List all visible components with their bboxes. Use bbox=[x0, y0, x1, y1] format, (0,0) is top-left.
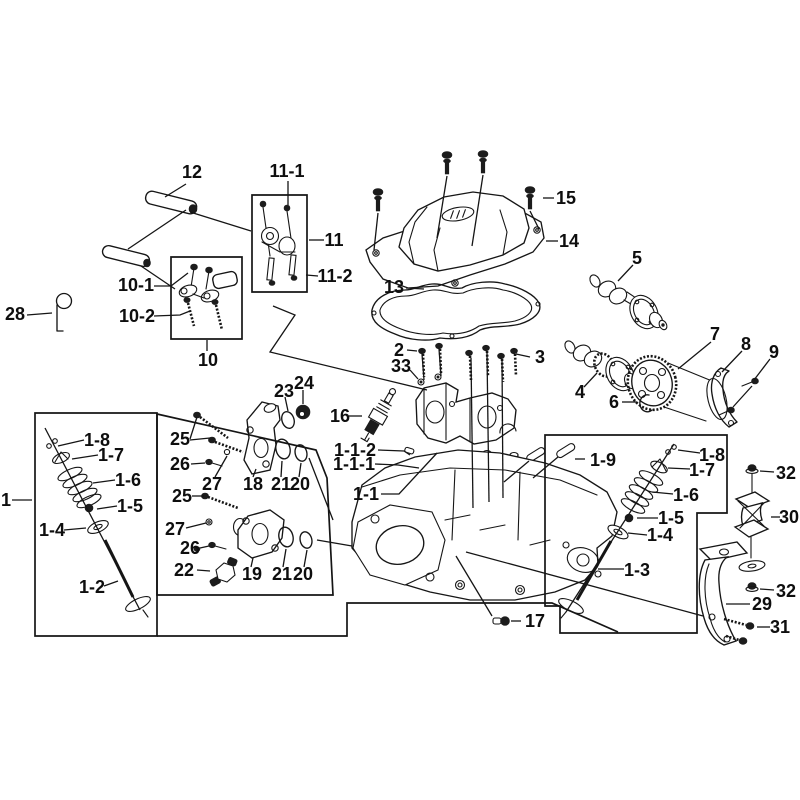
label-1-9: 1-9 bbox=[590, 450, 616, 470]
ld-4 bbox=[584, 373, 597, 387]
part-cam-sprocket-7 bbox=[622, 351, 731, 422]
diagram-canvas: 1211-11111-210-110-210281514135789462333… bbox=[0, 0, 800, 800]
label-5: 5 bbox=[632, 248, 642, 268]
label-33: 33 bbox=[391, 356, 411, 376]
label-1-6-left: 1-6 bbox=[115, 470, 141, 490]
label-1: 1 bbox=[1, 490, 11, 510]
label-16: 16 bbox=[330, 406, 350, 426]
exploded-parts-diagram: 1211-11111-210-110-210281514135789462333… bbox=[0, 0, 800, 800]
part-cylinder-head bbox=[352, 450, 617, 600]
label-14: 14 bbox=[559, 231, 579, 251]
label-26-bottom: 26 bbox=[180, 538, 200, 558]
part-head-bolts-3 bbox=[466, 345, 518, 382]
label-4: 4 bbox=[575, 382, 585, 402]
group-outline-head-band bbox=[157, 603, 618, 636]
label-21-top: 21 bbox=[271, 474, 291, 494]
label-18: 18 bbox=[243, 474, 263, 494]
label-11-1: 11-1 bbox=[269, 161, 304, 181]
ld-1-7L bbox=[72, 455, 98, 459]
label-1-4-right: 1-4 bbox=[647, 525, 673, 545]
label-8: 8 bbox=[741, 334, 751, 354]
ld-1-8R bbox=[678, 450, 700, 453]
part-spark-plug-16 bbox=[358, 385, 401, 444]
ld-26a bbox=[191, 463, 205, 464]
ld-3 bbox=[516, 354, 530, 357]
part-illustrations bbox=[47, 151, 769, 646]
label-11-2: 11-2 bbox=[317, 266, 352, 286]
label-21-bottom: 21 bbox=[272, 564, 292, 584]
label-25-bottom: 25 bbox=[172, 486, 192, 506]
label-19: 19 bbox=[242, 564, 262, 584]
label-27-bottom: 27 bbox=[165, 519, 185, 539]
part-cap-24 bbox=[296, 405, 310, 419]
ld-28 bbox=[27, 313, 52, 315]
label-20-bottom: 20 bbox=[293, 564, 313, 584]
label-12: 12 bbox=[182, 162, 202, 182]
part-cam-carrier-1-1 bbox=[416, 383, 516, 444]
part-washers-33 bbox=[418, 374, 441, 385]
label-10-1: 10-1 bbox=[118, 275, 154, 295]
ld-1-4L bbox=[64, 528, 86, 530]
label-29: 29 bbox=[752, 594, 772, 614]
part-nut-32-bottom bbox=[746, 583, 758, 592]
ld-25a bbox=[190, 417, 197, 439]
ld-22 bbox=[197, 570, 210, 571]
part-valve-cover-14 bbox=[366, 192, 544, 288]
part-bracket-29 bbox=[699, 542, 747, 645]
ld-32b bbox=[760, 589, 774, 590]
part-camshaft-5 bbox=[588, 273, 669, 333]
label-15: 15 bbox=[556, 188, 576, 208]
label-23: 23 bbox=[274, 381, 294, 401]
label-1-7-left: 1-7 bbox=[98, 445, 124, 465]
ld-7 bbox=[678, 342, 711, 369]
label-1-6-right: 1-6 bbox=[673, 485, 699, 505]
part-sensor-22 bbox=[209, 557, 238, 587]
ld-1-5L bbox=[97, 506, 117, 509]
label-1-7-right: 1-7 bbox=[689, 460, 715, 480]
ld-9b bbox=[733, 386, 752, 407]
label-20-top: 20 bbox=[290, 474, 310, 494]
ld-1-7R bbox=[668, 468, 690, 469]
ld-5 bbox=[618, 265, 633, 281]
ld-13 bbox=[406, 288, 424, 289]
ld-9 bbox=[754, 359, 770, 380]
label-7: 7 bbox=[710, 324, 720, 344]
label-28: 28 bbox=[5, 304, 25, 324]
ld-1-4R bbox=[628, 533, 647, 535]
ld-25a2 bbox=[190, 438, 210, 440]
label-32-bottom: 32 bbox=[776, 581, 796, 601]
ld-27b bbox=[186, 523, 206, 528]
label-11: 11 bbox=[324, 230, 343, 250]
label-6: 6 bbox=[609, 392, 619, 412]
ld-1-2 bbox=[104, 581, 118, 586]
label-3: 3 bbox=[535, 347, 545, 367]
label-1-1: 1-1 bbox=[353, 484, 379, 504]
ld-32a bbox=[760, 471, 774, 472]
label-26-top: 26 bbox=[170, 454, 190, 474]
part-manifold-18 bbox=[193, 402, 310, 474]
part-dowel-1-1-2 bbox=[404, 447, 414, 455]
label-9: 9 bbox=[769, 342, 779, 362]
ld-oring-head-1 bbox=[309, 458, 333, 520]
label-1-4-left: 1-4 bbox=[39, 520, 65, 540]
part-hook-28 bbox=[57, 294, 72, 332]
label-25-top: 25 bbox=[170, 429, 190, 449]
ld-8 bbox=[722, 351, 742, 372]
ld-1-8L bbox=[58, 440, 84, 446]
label-1-3: 1-3 bbox=[624, 560, 650, 580]
label-22: 22 bbox=[174, 560, 194, 580]
ld-26b bbox=[200, 546, 209, 548]
ld-1-6L bbox=[93, 480, 115, 483]
ld-pin-box11 bbox=[190, 212, 251, 231]
ld-12 bbox=[165, 184, 186, 197]
ld-12-axis bbox=[128, 210, 186, 249]
ld-10-2 bbox=[154, 311, 190, 316]
label-30: 30 bbox=[779, 507, 799, 527]
label-1-1-1: 1-1-1 bbox=[333, 454, 375, 474]
part-mount-30 bbox=[735, 465, 769, 592]
label-17: 17 bbox=[525, 611, 545, 631]
part-rocker-shafts-12 bbox=[101, 190, 198, 268]
label-1-2: 1-2 bbox=[79, 577, 105, 597]
label-32-top: 32 bbox=[776, 463, 796, 483]
label-13: 13 bbox=[384, 277, 404, 297]
part-nut-32-top bbox=[746, 465, 758, 474]
ld-33 bbox=[410, 370, 418, 379]
label-10-2: 10-2 bbox=[119, 306, 155, 326]
label-10: 10 bbox=[198, 350, 218, 370]
label-31: 31 bbox=[770, 617, 790, 637]
label-24: 24 bbox=[294, 373, 314, 393]
part-plug-17 bbox=[493, 617, 510, 626]
ld-1-6R bbox=[652, 492, 673, 494]
label-1-5-left: 1-5 bbox=[117, 496, 143, 516]
label-27-top: 27 bbox=[202, 474, 222, 494]
part-rocker-assembly-11 bbox=[260, 201, 297, 286]
ld-2 bbox=[407, 350, 417, 351]
ld-oring-head-2 bbox=[317, 540, 352, 546]
